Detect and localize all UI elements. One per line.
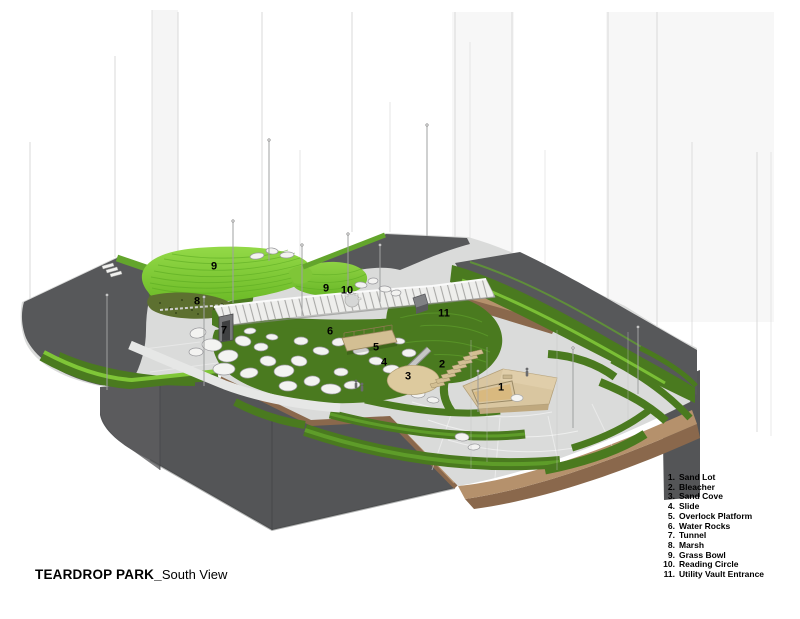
legend-item-number: 11.: [657, 570, 675, 580]
legend-item: 11. Utility Vault Entrance: [657, 570, 792, 580]
title-view-name: South View: [162, 567, 228, 582]
legend-item: 3. Sand Cove: [657, 492, 792, 502]
title-separator: _: [154, 567, 162, 582]
legend-item: 7. Tunnel: [657, 531, 792, 541]
site-illustration: 98910117654321 1. Sand Lot 2. Bleacher 3…: [0, 0, 800, 619]
legend: 1. Sand Lot 2. Bleacher 3. Sand Cove 4. …: [657, 473, 792, 580]
legend-item: 6. Water Rocks: [657, 522, 792, 532]
tunnel-portal: [219, 314, 233, 342]
legend-item: 1. Sand Lot: [657, 473, 792, 483]
sand-cove: [387, 365, 439, 394]
title-park-name: TEARDROP PARK: [35, 567, 154, 582]
legend-item: 2. Bleacher: [657, 483, 792, 493]
teardrop-park-rendering-page: { "title": { "name": "TEARDROP PARK", "s…: [0, 0, 800, 619]
legend-item-label: Utility Vault Entrance: [679, 570, 764, 580]
drawing-title: TEARDROP PARK_South View: [35, 566, 227, 584]
